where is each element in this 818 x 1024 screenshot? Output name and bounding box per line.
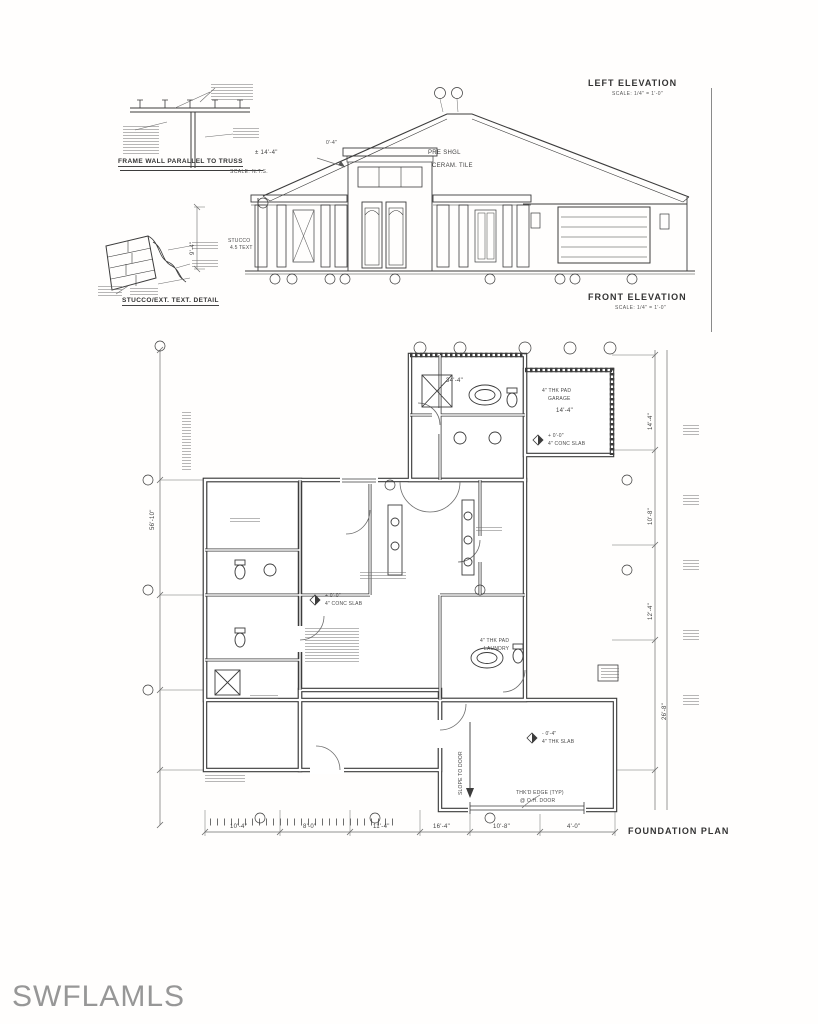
illegible-note-block (683, 425, 699, 437)
garage-door (561, 217, 647, 257)
front-elevation-scale: SCALE: 1/4" = 1'-0" (615, 305, 666, 311)
benchmark-b-note: 4" CONC SLAB (325, 601, 362, 607)
ohdoor-note-line2: @ O.H. DOOR (520, 798, 555, 804)
garage-pad-note-line1: 4" THK PAD (542, 388, 571, 394)
illegible-note-block (182, 412, 191, 472)
right-dimension-3: 12'-4" (648, 603, 654, 620)
illegible-note-block (601, 668, 619, 680)
left-column-bay (251, 195, 347, 267)
upper-dimension: 34'-4" (446, 378, 463, 384)
illegible-note-block (683, 695, 699, 707)
ohdoor-note-line1: THK'D EDGE (TYP) (516, 790, 564, 796)
benchmark-c-label: - 0'-4" (542, 731, 556, 737)
illegible-note-block (683, 560, 699, 572)
bottom-dimension-4: 16'-4" (433, 824, 450, 830)
dimension-line (194, 204, 205, 272)
reference-bubble-icon (270, 274, 637, 284)
garage-pad-note-line2: GARAGE (548, 396, 571, 402)
benchmark-a-note: 4" CONC SLAB (548, 441, 585, 447)
bottom-dimension-3: 11'-4" (373, 824, 390, 830)
reference-bubble-icon (258, 198, 268, 208)
bottom-dimension-5: 10'-8" (493, 824, 510, 830)
benchmark-b-label: + 0'-0" (325, 593, 341, 599)
illegible-note-block (230, 518, 260, 524)
reference-bubble-icon (435, 88, 463, 113)
illegible-note-block (305, 628, 359, 662)
benchmark-c-note: 4" THK SLAB (542, 739, 574, 745)
entry-doors (362, 202, 406, 268)
illegible-note-block (683, 495, 699, 507)
illegible-note-block (250, 695, 278, 701)
bottom-dimension-2: 8'-0" (303, 824, 316, 830)
wall-height-dimension: 9'-4" (190, 242, 196, 255)
garage-elevation (523, 197, 687, 271)
illegible-note-block (360, 572, 406, 581)
foundation-plan-title: FOUNDATION PLAN (628, 826, 729, 836)
bottom-dimension-1: 10'-4" (230, 824, 247, 830)
wall-note-line1: STUCCO (228, 238, 250, 244)
garage-wing-dimension: 14'-4" (556, 408, 573, 414)
illegible-note-block (476, 527, 502, 533)
right-column-bay (433, 195, 531, 267)
wall-note-line2: 4.5 TEXT (230, 245, 253, 251)
roof-note-line1: PRE SHGL (428, 150, 461, 156)
blueprint-sheet: LEFT ELEVATION SCALE: 1/4" = 1'-0" FRAME… (0, 0, 818, 1024)
laundry-pad-note-line2: LAUNDRY (484, 646, 509, 652)
roof-note-line2: CERAM. TILE (432, 163, 473, 169)
front-elevation-title: FRONT ELEVATION (588, 292, 687, 302)
benchmark-a-label: + 0'-0" (548, 433, 564, 439)
illegible-note-block (683, 630, 699, 642)
entry-tower (343, 148, 437, 271)
right-dimension-1: 14'-4" (648, 413, 654, 430)
right-dimension-4: 26'-8" (662, 703, 668, 720)
laundry-pad-note-line1: 4" THK PAD (480, 638, 509, 644)
foundation-plan-drawing (140, 340, 730, 870)
slope-note: SLOPE TO DOOR (458, 751, 464, 795)
ridge-dimension: ± 14'-4" (255, 150, 278, 156)
watermark: SWFLAMLS (12, 980, 185, 1014)
eave-dimension: 0'-4" (326, 140, 337, 146)
bottom-dimension-6: 4'-0" (567, 824, 580, 830)
right-dimension-2: 10'-8" (648, 508, 654, 525)
left-overall-dimension: 56'-10" (150, 509, 156, 530)
illegible-note-block (205, 775, 245, 783)
